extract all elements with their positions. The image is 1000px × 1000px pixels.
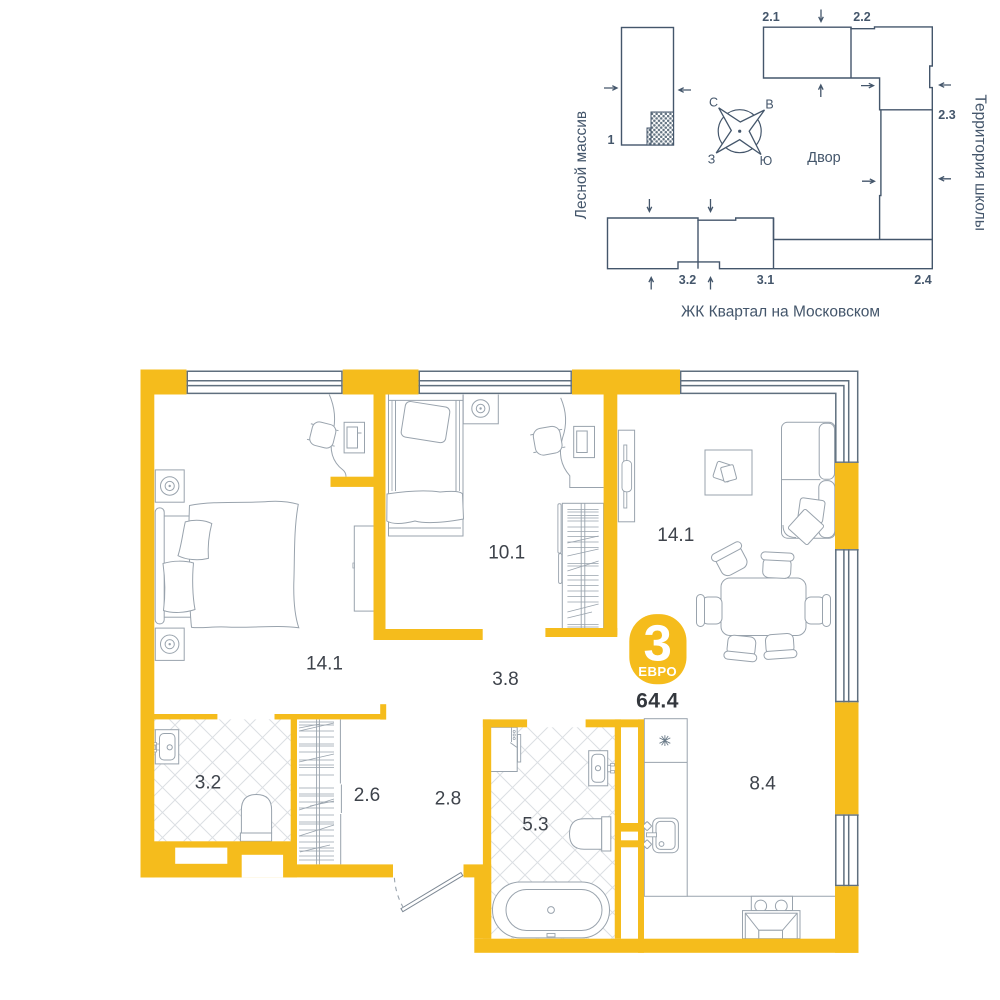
svg-text:Территория школы: Территория школы [972, 94, 989, 231]
svg-text:З: З [708, 153, 716, 167]
svg-text:2.1: 2.1 [762, 10, 779, 24]
svg-text:5.3: 5.3 [522, 815, 548, 836]
svg-text:10.1: 10.1 [488, 543, 525, 564]
svg-text:64.4: 64.4 [636, 690, 679, 713]
svg-text:Двор: Двор [807, 150, 841, 166]
svg-text:14.1: 14.1 [657, 525, 694, 546]
svg-text:8.4: 8.4 [749, 774, 776, 795]
svg-text:3.2: 3.2 [195, 773, 221, 794]
svg-text:ЕВРО: ЕВРО [638, 664, 677, 679]
svg-text:ЖК Квартал на Московском: ЖК Квартал на Московском [681, 304, 880, 321]
svg-text:2.6: 2.6 [354, 785, 380, 806]
svg-text:Ю: Ю [760, 154, 773, 168]
svg-text:С: С [709, 96, 718, 110]
svg-text:2.8: 2.8 [435, 789, 461, 810]
svg-text:3: 3 [644, 615, 672, 672]
svg-text:3.1: 3.1 [757, 273, 774, 287]
svg-text:1: 1 [608, 133, 615, 147]
svg-text:14.1: 14.1 [306, 654, 343, 675]
svg-text:Лесной массив: Лесной массив [573, 111, 590, 219]
svg-text:2.3: 2.3 [938, 108, 955, 122]
svg-text:3.8: 3.8 [492, 669, 518, 690]
svg-text:В: В [765, 98, 773, 112]
svg-text:3.2: 3.2 [679, 273, 696, 287]
svg-text:2.4: 2.4 [914, 273, 931, 287]
svg-text:2.2: 2.2 [853, 10, 870, 24]
